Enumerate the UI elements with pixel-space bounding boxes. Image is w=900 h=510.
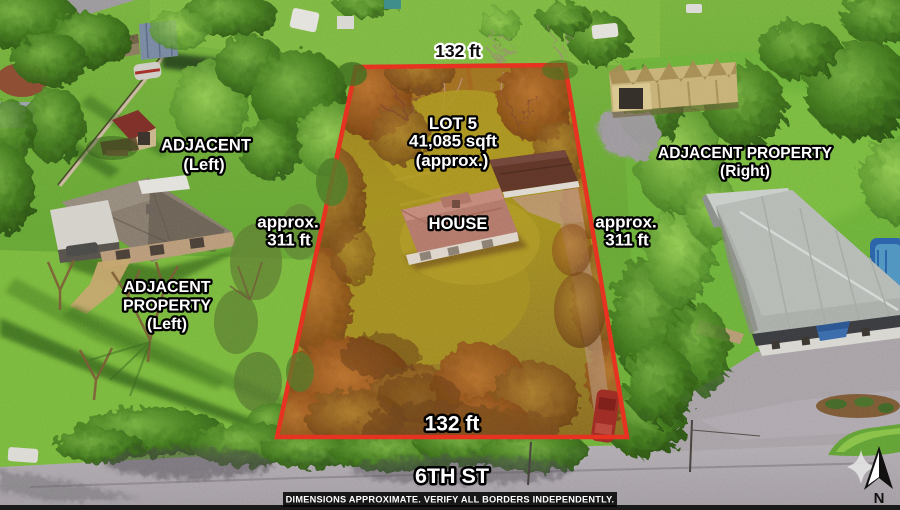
svg-text:HOUSE: HOUSE: [429, 215, 488, 233]
svg-text:ADJACENT: ADJACENT: [161, 137, 251, 155]
svg-text:311 ft: 311 ft: [267, 231, 311, 250]
svg-text:PROPERTY: PROPERTY: [123, 298, 211, 315]
svg-text:311 ft: 311 ft: [605, 231, 649, 250]
svg-text:(Right): (Right): [720, 163, 770, 180]
svg-text:approx.: approx.: [595, 213, 656, 232]
svg-text:N: N: [874, 490, 885, 507]
svg-text:ADJACENT PROPERTY: ADJACENT PROPERTY: [658, 145, 833, 162]
svg-text:approx.: approx.: [257, 213, 318, 232]
svg-text:ADJACENT: ADJACENT: [123, 279, 210, 296]
svg-text:DIMENSIONS APPROXIMATE. VERIFY: DIMENSIONS APPROXIMATE. VERIFY ALL BORDE…: [286, 495, 615, 505]
svg-text:(Left): (Left): [183, 156, 224, 174]
svg-text:132 ft: 132 ft: [435, 41, 481, 61]
svg-text:41,085 sqft: 41,085 sqft: [409, 132, 497, 151]
svg-text:6TH ST: 6TH ST: [415, 464, 489, 488]
svg-text:LOT 5: LOT 5: [429, 114, 477, 133]
svg-text:(Left): (Left): [147, 316, 187, 333]
svg-text:(approx.): (approx.): [416, 151, 489, 170]
svg-text:132 ft: 132 ft: [425, 413, 480, 436]
